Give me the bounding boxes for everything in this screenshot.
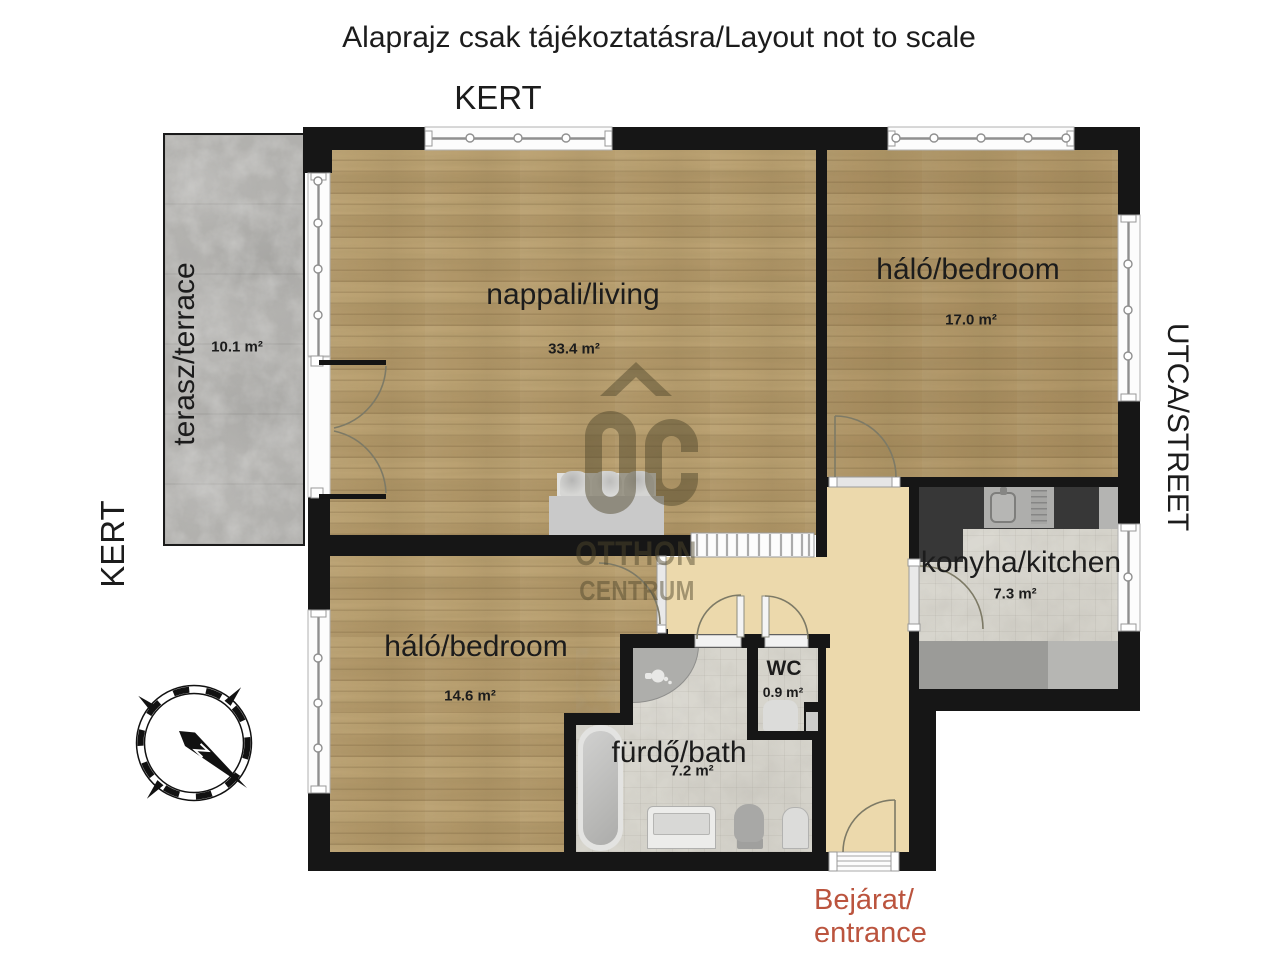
svg-text:OTTHON: OTTHON [575,533,697,572]
svg-text:CENTRUM: CENTRUM [579,576,695,607]
